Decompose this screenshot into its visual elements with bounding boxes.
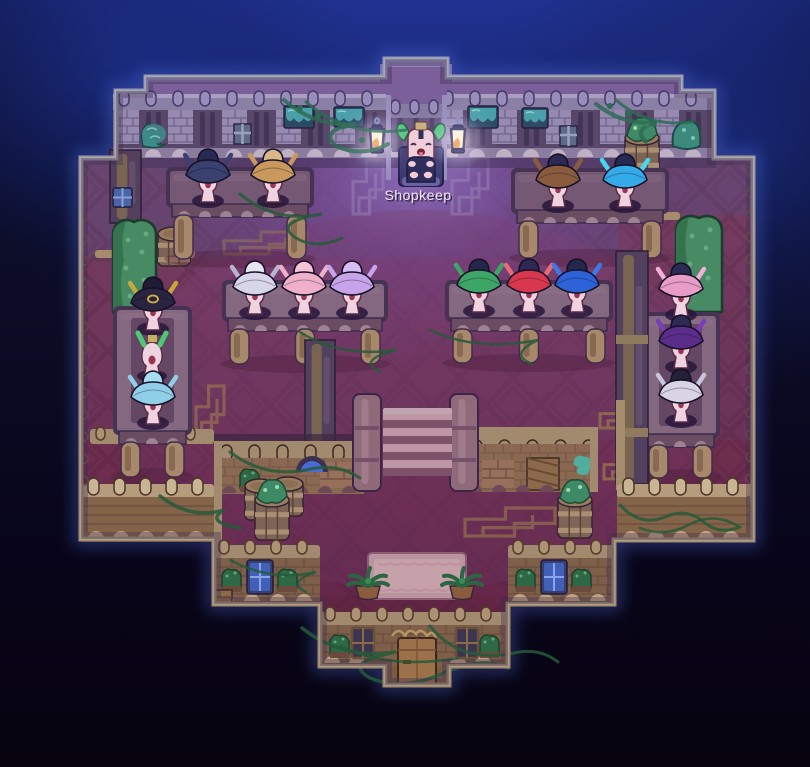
svg-text:Shopkeep: Shopkeep bbox=[384, 187, 451, 203]
